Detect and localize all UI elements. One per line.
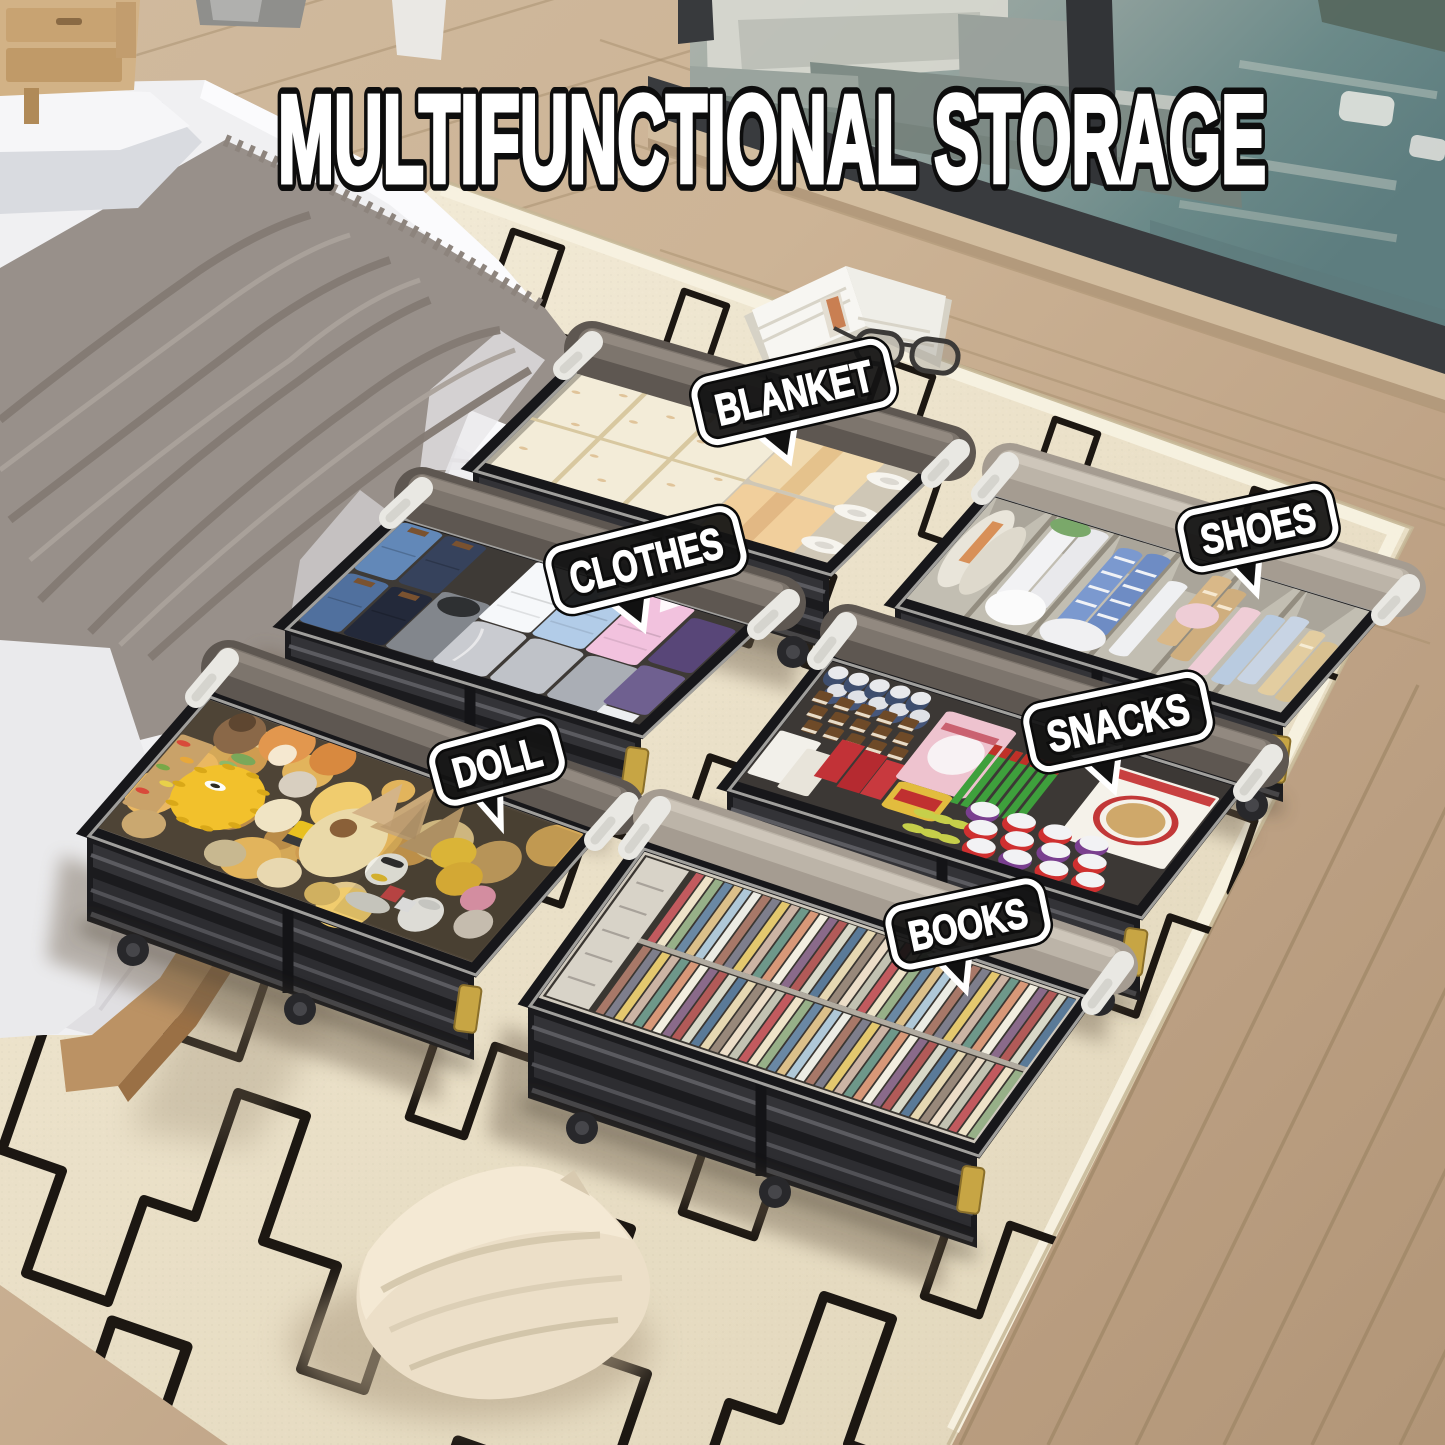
svg-text:MULTIFUNCTIONAL STORAGE: MULTIFUNCTIONAL STORAGE xyxy=(278,71,1266,209)
